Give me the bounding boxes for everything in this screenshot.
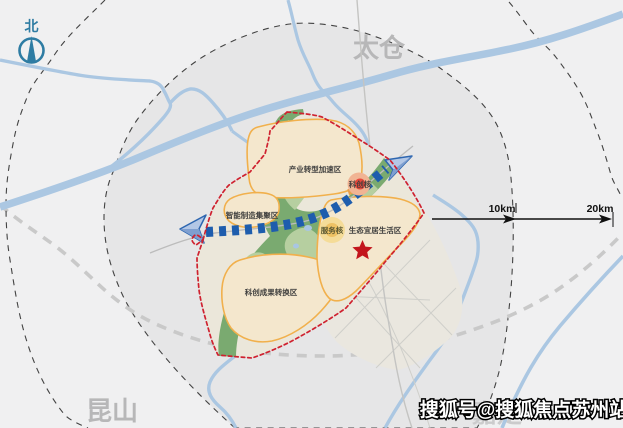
svg-text:智能制造集聚区: 智能制造集聚区 [226, 210, 279, 220]
svg-text:北: 北 [25, 18, 39, 34]
svg-text:科创成果转换区: 科创成果转换区 [245, 287, 298, 297]
svg-text:科创核: 科创核 [349, 179, 372, 189]
svg-text:生态宜居生活区: 生态宜居生活区 [349, 225, 402, 235]
svg-text:服务核: 服务核 [321, 225, 344, 235]
svg-text:20km: 20km [587, 203, 614, 215]
svg-text:搜狐号@搜狐焦点苏州站: 搜狐号@搜狐焦点苏州站 [420, 398, 623, 421]
svg-text:10km: 10km [489, 203, 516, 215]
svg-text:昆山: 昆山 [86, 396, 138, 426]
svg-text:产业转型加速区: 产业转型加速区 [289, 164, 342, 174]
